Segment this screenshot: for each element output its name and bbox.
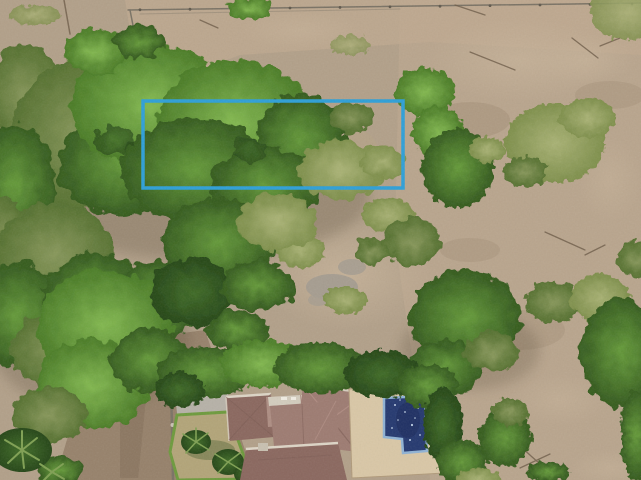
aerial-photo-canvas [0, 0, 641, 480]
aerial-photo [0, 0, 641, 480]
photo-grain-overlay [0, 0, 641, 480]
